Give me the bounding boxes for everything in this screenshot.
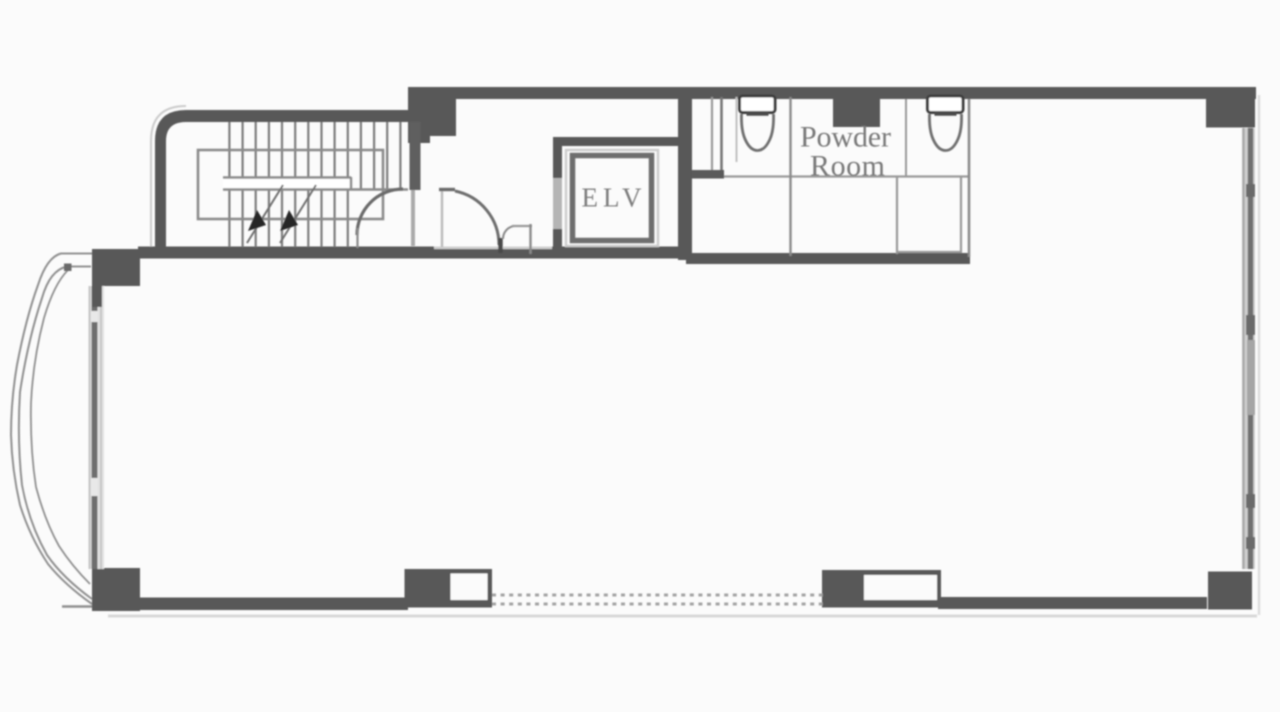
svg-text:ELV: ELV bbox=[581, 183, 646, 213]
svg-text:Room: Room bbox=[810, 150, 885, 183]
